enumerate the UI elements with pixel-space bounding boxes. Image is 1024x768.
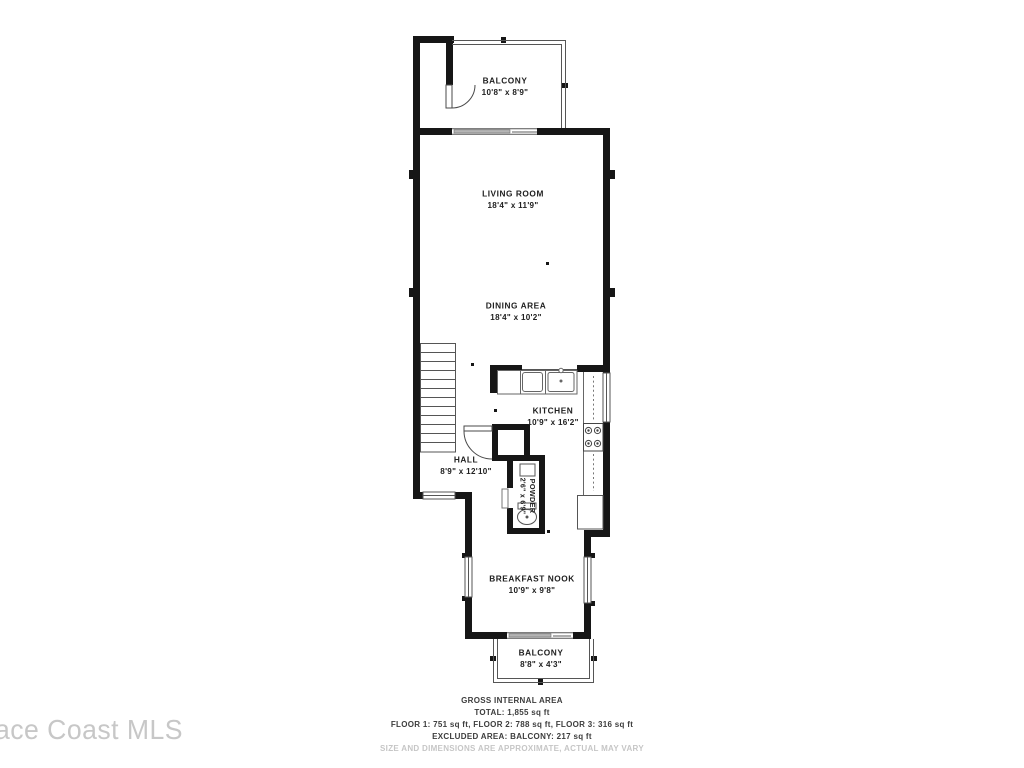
wall-segments (413, 36, 610, 639)
svg-text:KITCHEN: KITCHEN (533, 406, 574, 416)
room-label-breakfast-nook: BREAKFAST NOOK 10'9" x 9'8" (489, 574, 575, 596)
balcony-door (446, 85, 475, 108)
stairs (421, 344, 456, 453)
toilet-dot (526, 516, 528, 518)
svg-text:BALCONY: BALCONY (519, 648, 564, 658)
summary-title: GROSS INTERNAL AREA (0, 695, 1024, 707)
powder-door (502, 489, 508, 508)
dishwasher (523, 373, 543, 392)
nook-balcony-slider (507, 632, 573, 639)
hall-window (423, 492, 455, 499)
room-label-balcony-top: BALCONY 10'8" x 8'9" (482, 76, 529, 98)
powder-sink (520, 464, 535, 476)
svg-text:8'8" x 4'3": 8'8" x 4'3" (520, 660, 562, 669)
refrigerator (578, 496, 604, 530)
svg-text:10'9" x 16'2": 10'9" x 16'2" (527, 418, 578, 427)
svg-text:18'4" x 11'9": 18'4" x 11'9" (488, 201, 539, 210)
svg-text:BALCONY: BALCONY (483, 76, 528, 86)
room-label-kitchen: KITCHEN 10'9" x 16'2" (527, 406, 578, 428)
svg-text:DINING AREA: DINING AREA (486, 301, 547, 311)
svg-text:HALL: HALL (454, 455, 478, 465)
floorplan-canvas: BALCONY 10'8" x 8'9" LIVING ROOM 18'4" x… (0, 0, 1024, 768)
stove (584, 424, 604, 452)
room-label-dining-area: DINING AREA 18'4" x 10'2" (486, 301, 547, 323)
nook-right-window (584, 557, 591, 603)
room-label-balcony-bottom: BALCONY 8'8" x 4'3" (519, 648, 564, 670)
nook-left-window (465, 557, 472, 597)
living-balcony-slider (452, 128, 537, 135)
svg-text:BREAKFAST NOOK: BREAKFAST NOOK (489, 574, 575, 584)
svg-text:10'9" x 9'8": 10'9" x 9'8" (509, 586, 556, 595)
svg-text:10'8" x 8'9": 10'8" x 8'9" (482, 88, 529, 97)
kitchen-window (603, 373, 610, 422)
svg-text:18'4" x 10'2": 18'4" x 10'2" (490, 313, 541, 322)
sink-drain (560, 380, 562, 382)
svg-text:LIVING ROOM: LIVING ROOM (482, 189, 544, 199)
mls-watermark: ace Coast MLS (0, 714, 183, 746)
svg-text:POWDER: POWDER (528, 479, 537, 514)
faucet-icon (559, 368, 563, 372)
kitchen-fixtures (498, 368, 604, 529)
svg-text:8'9" x 12'10": 8'9" x 12'10" (440, 467, 491, 476)
room-label-living-room: LIVING ROOM 18'4" x 11'9" (482, 189, 544, 211)
svg-text:2'6" x 6'9": 2'6" x 6'9" (519, 478, 526, 515)
